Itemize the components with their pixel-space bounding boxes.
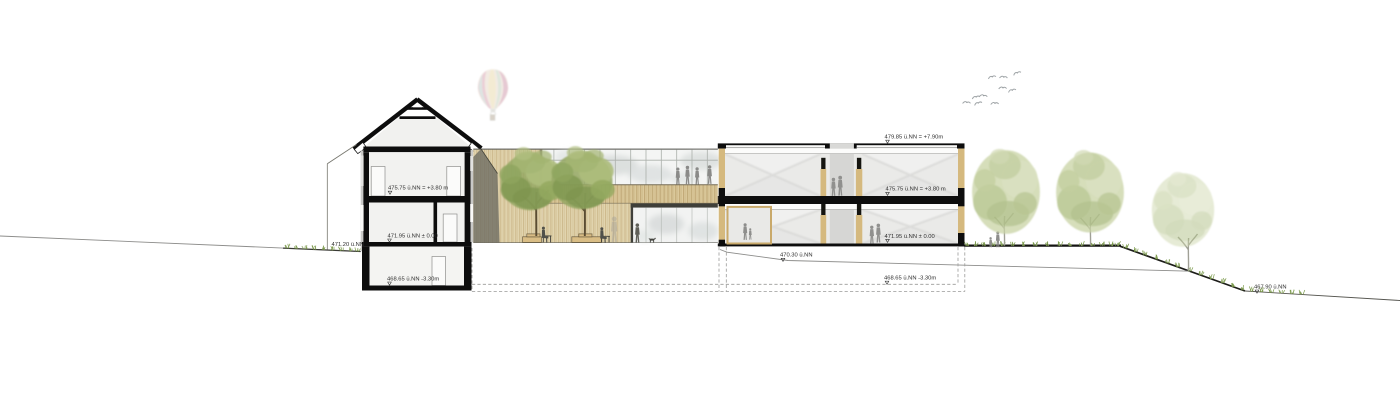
svg-text:467.90 ü.NN: 467.90 ü.NN [1254,284,1287,290]
svg-text:471.95 ü.NN ± 0.00: 471.95 ü.NN ± 0.00 [885,234,935,240]
svg-text:471.20 ü.NN: 471.20 ü.NN [332,242,365,248]
svg-text:468.65 ü.NN -3.30m: 468.65 ü.NN -3.30m [884,276,936,282]
svg-text:471.95 ü.NN ± 0.00: 471.95 ü.NN ± 0.00 [388,234,438,240]
svg-text:479.85 ü.NN = +7.90m: 479.85 ü.NN = +7.90m [885,135,944,141]
svg-text:475.75 ü.NN = +3.80 m: 475.75 ü.NN = +3.80 m [388,185,448,191]
svg-text:475.75 ü.NN = +3.80 m: 475.75 ü.NN = +3.80 m [886,187,946,193]
svg-text:470.30 ü.NN: 470.30 ü.NN [780,253,813,259]
svg-text:468.65 ü.NN -3.30m: 468.65 ü.NN -3.30m [387,276,439,282]
